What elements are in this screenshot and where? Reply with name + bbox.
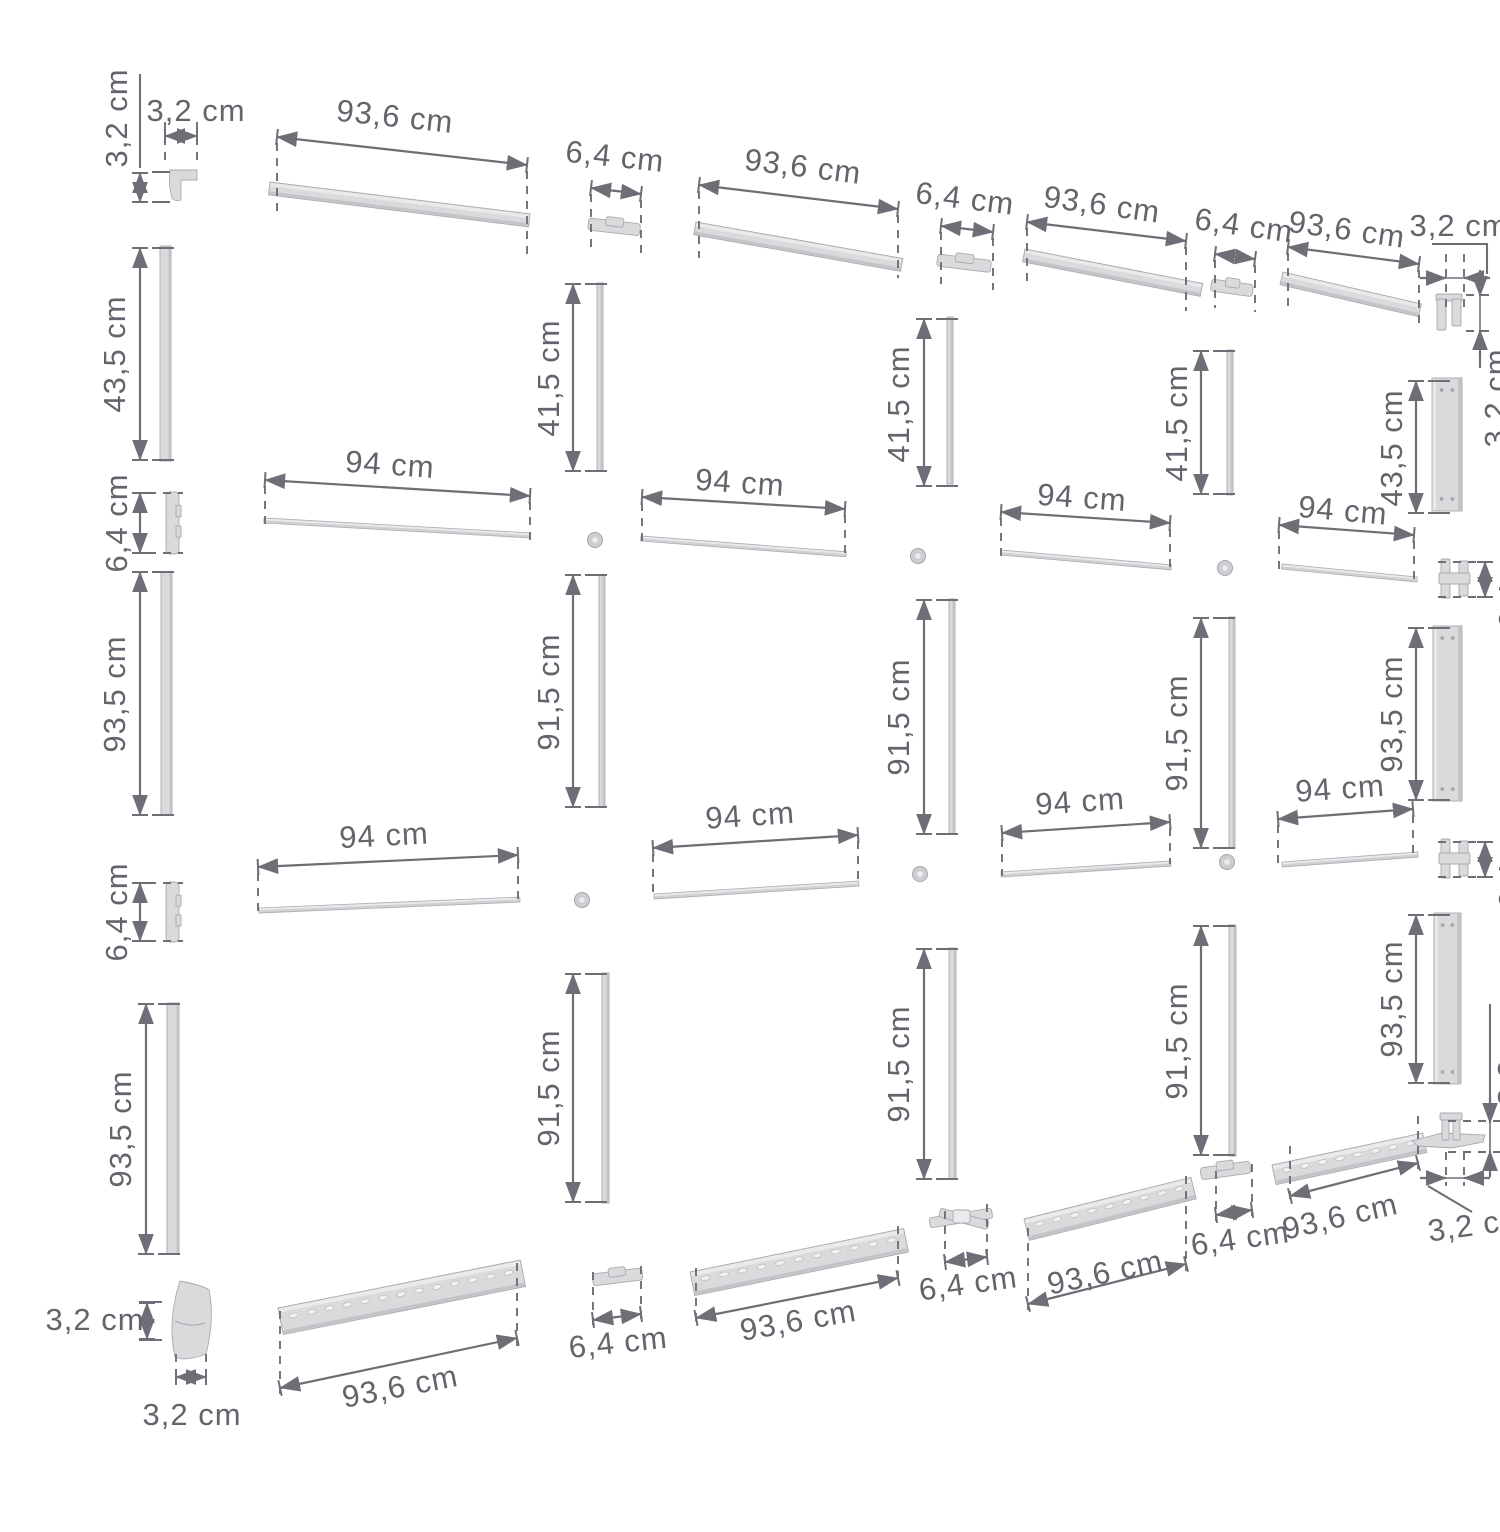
dimension-label: 93,5 cm: [97, 635, 132, 752]
top-rail-4: [1280, 272, 1421, 317]
dimension-label: 43,5 cm: [1374, 389, 1409, 506]
dimension-label: 6,4 cm: [917, 1259, 1020, 1307]
dimension-label: 6,4 cm: [1492, 529, 1500, 628]
dimension-line: [945, 1257, 987, 1262]
bottom-rail-3: [1024, 1177, 1196, 1240]
end-tick: [1185, 233, 1187, 249]
end-tick: [518, 847, 519, 863]
dimension-label: 93,6 cm: [1044, 1243, 1166, 1302]
end-tick: [1277, 811, 1278, 827]
end-tick: [265, 472, 266, 488]
post-middle-1a: [597, 283, 603, 471]
dimension-label: 6,4 cm: [99, 862, 134, 961]
end-tick: [640, 1306, 642, 1322]
dimension-label: 94 cm: [1297, 489, 1389, 532]
connector-dot-2c: [1220, 855, 1235, 870]
dimension-label: 6,4 cm: [99, 473, 134, 572]
bar-1a: [264, 518, 530, 538]
top-connector-2: [937, 251, 992, 273]
dimension-line: [593, 1314, 641, 1320]
bottom-connector-2: [929, 1208, 993, 1230]
dimension-label: 6,4 cm: [567, 1320, 669, 1365]
end-tick: [258, 859, 259, 875]
dimension-label: 41,5 cm: [531, 319, 566, 436]
dim-post-mid-2b: 91,5 cm: [881, 600, 958, 834]
connector-dot-2a: [575, 893, 590, 908]
connector-dot-2b: [913, 867, 928, 882]
dimensions-layer: 3,2 cm3,2 cm93,6 cm6,4 cm93,6 cm6,4 cm93…: [45, 68, 1500, 1431]
post-middle-3c: [1229, 925, 1236, 1156]
dimension-label: 91,5 cm: [881, 658, 916, 775]
dimension-line: [1215, 254, 1255, 259]
end-tick: [592, 1312, 594, 1328]
parts-dimension-diagram: 3,2 cm3,2 cm93,6 cm6,4 cm93,6 cm6,4 cm93…: [40, 16, 1500, 1516]
dim-foot-right-width: 3,2 cm: [1420, 1152, 1500, 1249]
top-connector-3: [1210, 276, 1254, 297]
dimension-label: 3,2 cm: [45, 1302, 144, 1337]
dimension-line: [1002, 822, 1170, 833]
bar-2c: [1001, 861, 1171, 877]
end-tick: [640, 186, 642, 202]
dimension-label: 6,4 cm: [1189, 1214, 1292, 1262]
dim-corner-tl-height: 3,2 cm: [99, 68, 170, 202]
dimension-label: 3,2 cm: [142, 1397, 241, 1432]
dim-post-mid-1a: 41,5 cm: [531, 284, 607, 471]
connector-right-1: [1439, 559, 1470, 598]
dimension-label: 93,6 cm: [737, 1293, 859, 1348]
top-rail-2: [694, 222, 903, 271]
connector-dot-1a: [588, 533, 603, 548]
dimension-label: 93,5 cm: [1374, 655, 1409, 772]
dim-bar-2a: 94 cm: [258, 816, 519, 912]
dim-foot-left-width: 3,2 cm: [142, 1354, 241, 1432]
post-middle-3b: [1229, 617, 1235, 848]
top-rail-3: [1023, 249, 1203, 296]
foot-left: [172, 1281, 211, 1359]
dimension-label: 93,5 cm: [1374, 940, 1409, 1057]
connector-left-2: [166, 882, 181, 942]
bar-1d: [1282, 564, 1418, 582]
end-tick: [1169, 515, 1170, 531]
dim-top-rail-3: 93,6 cm: [1026, 179, 1187, 311]
dimension-label: 3,2 cm: [1409, 208, 1500, 243]
dimension-line: [1027, 222, 1186, 241]
dim-corner-tr-height: 3,2 cm: [1466, 270, 1500, 448]
end-tick: [526, 157, 528, 173]
dimension-line: [277, 137, 527, 165]
post-left-3: [167, 1003, 179, 1254]
dim-top-connector-2: 6,4 cm: [914, 175, 1017, 290]
bar-2b: [654, 881, 859, 899]
dim-bar-2c: 94 cm: [1001, 781, 1170, 876]
dim-post-mid-3b: 91,5 cm: [1159, 618, 1235, 848]
leader-line: [1432, 244, 1487, 274]
dimension-label: 3,2 cm: [99, 68, 134, 167]
post-middle-2b: [949, 599, 955, 834]
dimension-label: 91,5 cm: [531, 1029, 566, 1146]
end-tick: [1000, 504, 1001, 520]
corner-piece-top-right: [1436, 294, 1462, 330]
end-tick: [897, 201, 899, 217]
dimension-label: 94 cm: [344, 444, 436, 485]
end-tick: [590, 180, 592, 196]
dim-post-mid-2c: 91,5 cm: [881, 949, 958, 1179]
end-tick: [642, 489, 643, 505]
end-tick: [1278, 517, 1279, 533]
bar-1c: [1001, 550, 1172, 570]
dim-top-rail-1: 93,6 cm: [276, 93, 528, 254]
dim-bar-2d: 94 cm: [1277, 768, 1413, 865]
dimension-line: [1278, 809, 1413, 819]
connector-left-1: [166, 492, 181, 554]
dimension-label: 91,5 cm: [1159, 982, 1194, 1099]
bar-2a: [259, 897, 520, 913]
post-middle-2c: [949, 948, 956, 1179]
bar-1b: [641, 536, 847, 557]
dimension-line: [1216, 1210, 1252, 1215]
dimension-label: 94 cm: [1034, 781, 1126, 822]
end-tick: [1254, 251, 1256, 267]
end-tick: [1026, 214, 1028, 230]
dimension-label: 91,5 cm: [1159, 674, 1194, 791]
dimension-label: 91,5 cm: [881, 1005, 916, 1122]
dim-top-connector-1: 6,4 cm: [564, 134, 666, 256]
post-middle-1c: [602, 973, 609, 1203]
dim-post-mid-1b: 91,5 cm: [531, 575, 607, 807]
dimension-label: 93,5 cm: [103, 1070, 138, 1187]
end-tick: [940, 218, 942, 234]
dim-post-mid-2a: 41,5 cm: [881, 319, 958, 486]
dimension-label: 6,4 cm: [914, 175, 1017, 222]
post-right-2: [1433, 626, 1462, 801]
post-right-1: [1432, 378, 1462, 511]
dimension-label: 3,2 cm: [146, 93, 245, 128]
bottom-rail-1: [278, 1260, 526, 1334]
bottom-connector-1: [592, 1264, 644, 1285]
post-left-1: [160, 246, 171, 461]
connector-dot-1c: [1218, 561, 1233, 576]
bottom-connector-3: [1200, 1158, 1252, 1180]
end-tick: [1169, 814, 1170, 830]
dimension-label: 43,5 cm: [97, 295, 132, 412]
connector-right-2: [1439, 839, 1470, 878]
end-tick: [698, 177, 700, 193]
dimension-label: 41,5 cm: [1159, 364, 1194, 481]
end-tick: [1001, 825, 1002, 841]
top-connector-1: [588, 215, 641, 236]
parts-layer: [160, 170, 1485, 1359]
dimension-label: 94 cm: [338, 816, 429, 856]
dimension-label: 94 cm: [704, 795, 796, 836]
foot-right: [1412, 1113, 1485, 1148]
dimension-label: 93,6 cm: [743, 142, 864, 191]
bottom-rail-2: [690, 1229, 908, 1296]
dim-post-mid-1c: 91,5 cm: [531, 974, 607, 1202]
end-tick: [1413, 527, 1414, 543]
dim-bottom-rail-4: 93,6 cm: [1279, 1116, 1420, 1247]
connector-dot-1b: [911, 549, 926, 564]
end-tick: [1412, 801, 1413, 817]
post-middle-1b: [599, 575, 605, 807]
dimension-label: 93,6 cm: [1286, 204, 1407, 255]
dimension-label: 93,6 cm: [335, 93, 455, 140]
dim-foot-left-height: 3,2 cm: [45, 1302, 162, 1340]
dimension-label: 6,4 cm: [1192, 201, 1295, 249]
post-right-3: [1434, 913, 1461, 1084]
bottom-rail-4: [1272, 1133, 1427, 1185]
dimension-label: 94 cm: [1036, 477, 1128, 518]
end-tick: [992, 224, 994, 240]
end-tick: [1418, 256, 1420, 272]
end-tick: [276, 129, 278, 145]
dimension-line: [653, 835, 858, 848]
dim-corner-tl-width: 3,2 cm: [146, 93, 245, 166]
end-tick: [652, 840, 653, 856]
dimension-label: 3,2 cm: [1478, 348, 1500, 447]
post-left-2: [161, 572, 172, 815]
dimension-label: 91,5 cm: [531, 633, 566, 750]
dimension-label: 41,5 cm: [881, 345, 916, 462]
end-tick: [530, 488, 531, 504]
dim-bar-2b: 94 cm: [652, 795, 858, 896]
dimension-line: [258, 855, 518, 867]
top-rail-1: [268, 182, 530, 227]
bar-2d: [1282, 852, 1418, 867]
dimension-label: 3,2 cm: [1491, 1006, 1500, 1105]
dimension-line: [941, 226, 993, 232]
dimension-line: [591, 188, 641, 194]
corner-bracket-top-left: [169, 170, 197, 201]
end-tick: [857, 827, 858, 843]
dim-post-mid-3a: 41,5 cm: [1159, 351, 1235, 494]
end-tick: [1214, 246, 1216, 262]
end-tick: [845, 501, 846, 517]
dimension-label: 93,6 cm: [1041, 179, 1162, 230]
post-middle-3a: [1227, 350, 1233, 495]
post-middle-2a: [947, 317, 953, 484]
dimension-label: 94 cm: [1294, 768, 1386, 809]
diagram-canvas: 3,2 cm3,2 cm93,6 cm6,4 cm93,6 cm6,4 cm93…: [40, 16, 1500, 1516]
dimension-label: 6,4 cm: [564, 134, 666, 179]
dim-post-mid-3c: 91,5 cm: [1159, 926, 1235, 1155]
dimension-label: 93,6 cm: [339, 1358, 461, 1415]
diagram-svg: 3,2 cm3,2 cm93,6 cm6,4 cm93,6 cm6,4 cm93…: [40, 16, 1500, 1516]
dimension-line: [699, 185, 898, 209]
dimension-label: 6,4 cm: [1492, 809, 1500, 908]
dimension-label: 94 cm: [694, 462, 786, 503]
